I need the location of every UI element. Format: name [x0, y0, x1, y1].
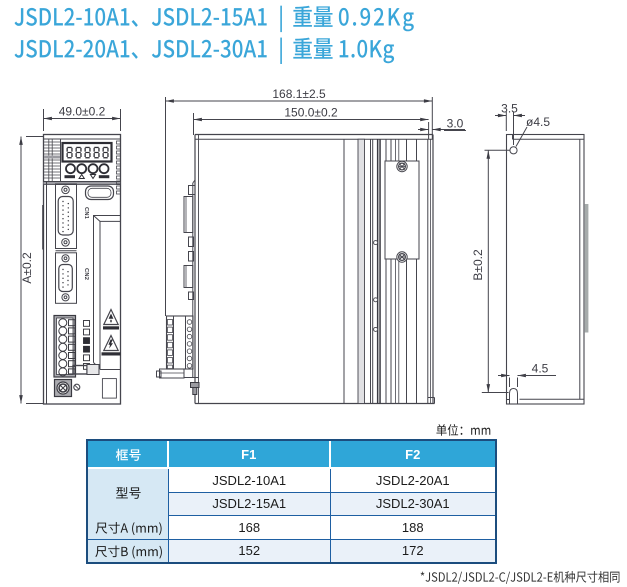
svg-text:3.5: 3.5	[501, 102, 518, 116]
svg-text:3.0: 3.0	[447, 117, 464, 131]
svg-text:A±0.2: A±0.2	[20, 252, 34, 284]
svg-text:4.5: 4.5	[532, 362, 549, 376]
svg-text:CN2: CN2	[83, 268, 89, 280]
svg-text:ø4.5: ø4.5	[526, 115, 550, 129]
svg-text:CN1: CN1	[83, 207, 89, 220]
svg-text:168.1±2.5: 168.1±2.5	[272, 87, 326, 101]
svg-text:B±0.2: B±0.2	[471, 249, 485, 281]
svg-text:49.0±0.2: 49.0±0.2	[59, 105, 106, 119]
svg-text:150.0±0.2: 150.0±0.2	[284, 106, 338, 120]
